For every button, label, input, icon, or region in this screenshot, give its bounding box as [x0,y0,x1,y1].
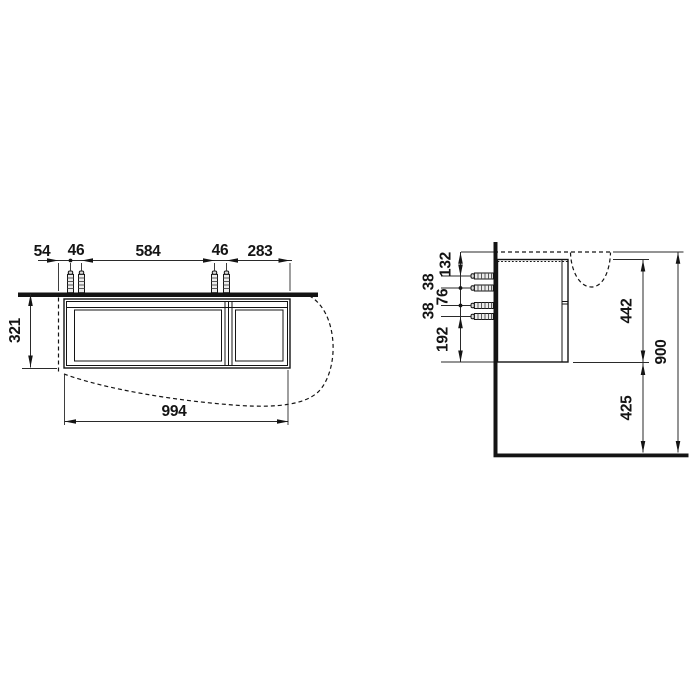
arrowhead [676,252,681,263]
dim-label-425: 425 [619,395,636,421]
front-view: 54 46 584 46 283 321 994 [7,242,333,425]
front-height-dimension: 321 [7,294,57,369]
front-cabinet-outline [64,299,290,368]
side-view: 132 38 76 38 192 442 425 900 [421,242,689,457]
side-basin-outline-dashed [571,253,611,288]
dim-label-38-lower: 38 [421,302,438,319]
front-mounting-screw-1 [68,271,74,293]
drawing-svg: 54 46 584 46 283 321 994 [0,0,700,700]
arrowhead [277,419,289,424]
arrowhead [65,419,77,424]
front-right-opening [236,310,284,361]
front-basin-outline-dashed [64,297,333,407]
arrowhead [641,364,646,376]
screw-cap [68,271,72,274]
front-mounting-screw-2 [79,271,85,293]
dim-label-994: 994 [162,403,188,420]
dim-label-46-right: 46 [212,242,229,259]
side-cabinet-outline [498,260,569,363]
front-main-opening [75,310,222,361]
front-mounting-screw-4 [224,271,230,293]
side-mounting-screw-3 [471,303,493,309]
arrowhead [279,258,291,263]
dimension-dot [459,304,463,308]
arrowhead [641,351,646,363]
dim-label-900: 900 [653,340,670,365]
arrowhead [676,441,681,453]
screw-shaft [68,274,74,292]
arrowhead [641,260,646,272]
front-mounting-screw-3 [212,271,218,293]
dim-label-38-upper: 38 [421,273,438,290]
dim-label-46-left: 46 [68,242,85,259]
dimension-dot [69,259,73,263]
front-countertop [18,293,318,298]
arrowhead [641,441,646,453]
dim-label-321: 321 [7,317,24,343]
dim-label-442: 442 [619,299,636,324]
side-mounting-screw-2 [471,285,493,291]
technical-drawing-page: 54 46 584 46 283 321 994 [0,0,700,700]
arrowhead [458,317,463,329]
dimension-dot [459,286,463,290]
arrowhead [458,252,463,263]
dim-label-584: 584 [136,243,162,260]
dim-label-283: 283 [248,243,274,260]
dim-label-132: 132 [438,252,455,277]
side-mounting-screw-1 [471,273,493,279]
front-width-dimension: 994 [65,370,289,425]
front-cabinet-inner-frame [67,302,288,366]
dim-label-192: 192 [435,327,452,352]
side-floor [494,454,689,458]
dim-label-54: 54 [34,243,51,260]
side-mounting-screw-4 [471,314,493,320]
arrowhead [458,351,463,363]
arrowhead [28,356,33,368]
arrowhead [458,265,463,277]
side-right-dimensions: 442 425 900 [573,252,684,453]
